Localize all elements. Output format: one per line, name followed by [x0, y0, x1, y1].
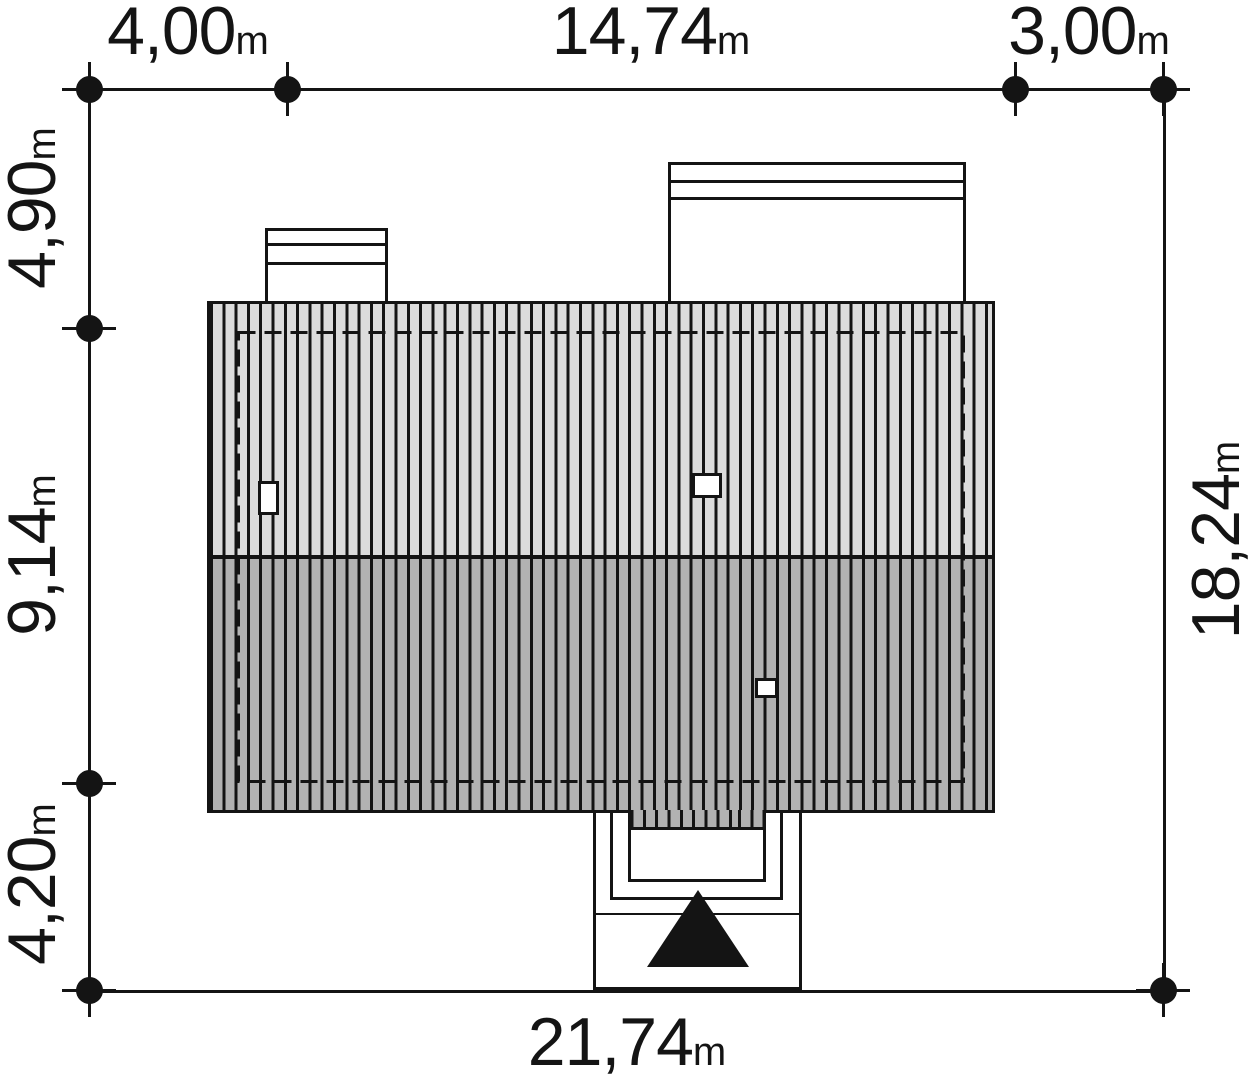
chimney-large-line	[671, 197, 963, 200]
dimension-unit: m	[20, 127, 64, 160]
dimension-marker	[76, 76, 103, 103]
dimension-marker	[1150, 977, 1177, 1004]
site-plan-canvas: 4,00m 14,74m 3,00m 4,90m 9,14m 4,20m 18,…	[0, 0, 1254, 1080]
chimney-small	[265, 228, 388, 301]
entrance-roof-canopy	[628, 810, 766, 830]
dimension-value: 14,74	[552, 0, 717, 69]
dimension-value: 3,00	[1008, 0, 1136, 69]
roof-window	[692, 473, 722, 498]
dimension-label-bottom: 21,74m	[528, 1008, 727, 1076]
dimension-value: 4,00	[107, 0, 235, 69]
dimension-unit: m	[717, 19, 750, 63]
dimension-label-top-right: 3,00m	[1008, 0, 1170, 65]
dimension-unit: m	[1204, 441, 1248, 474]
dimension-value: 9,14	[0, 507, 70, 635]
dimension-label-right: 18,24m	[1182, 441, 1250, 640]
dimension-unit: m	[20, 803, 64, 836]
entrance-arrow-icon	[647, 890, 749, 967]
dimension-value: 4,20	[0, 836, 70, 964]
chimney-small-line	[268, 262, 385, 265]
building-outline-dashed	[237, 331, 965, 783]
dimension-marker	[1150, 76, 1177, 103]
dimension-value: 4,90	[0, 160, 70, 288]
dimension-marker	[274, 76, 301, 103]
dimension-label-left-middle: 9,14m	[0, 474, 66, 636]
dimension-unit: m	[1137, 19, 1170, 63]
dimension-marker	[1002, 76, 1029, 103]
entrance-porch-inner	[628, 830, 766, 882]
dimension-value: 18,24	[1178, 474, 1254, 639]
dimension-label-left-top: 4,90m	[0, 127, 66, 289]
dimension-value: 21,74	[528, 1004, 693, 1080]
dimension-marker	[76, 315, 103, 342]
roof-window	[258, 481, 279, 515]
dimension-label-top-middle: 14,74m	[552, 0, 751, 65]
dimension-label-left-bottom: 4,20m	[0, 803, 66, 965]
dimension-unit: m	[20, 474, 64, 507]
dimension-unit: m	[236, 19, 269, 63]
dimension-marker	[76, 977, 103, 1004]
chimney-large-line	[671, 180, 963, 183]
dimension-label-top-left: 4,00m	[107, 0, 269, 65]
dimension-marker	[76, 770, 103, 797]
chimney-small-line	[268, 243, 385, 246]
roof-window	[755, 678, 778, 698]
roof-eave-edge-left	[207, 810, 628, 813]
dimension-unit: m	[693, 1030, 726, 1074]
chimney-large	[668, 162, 966, 301]
